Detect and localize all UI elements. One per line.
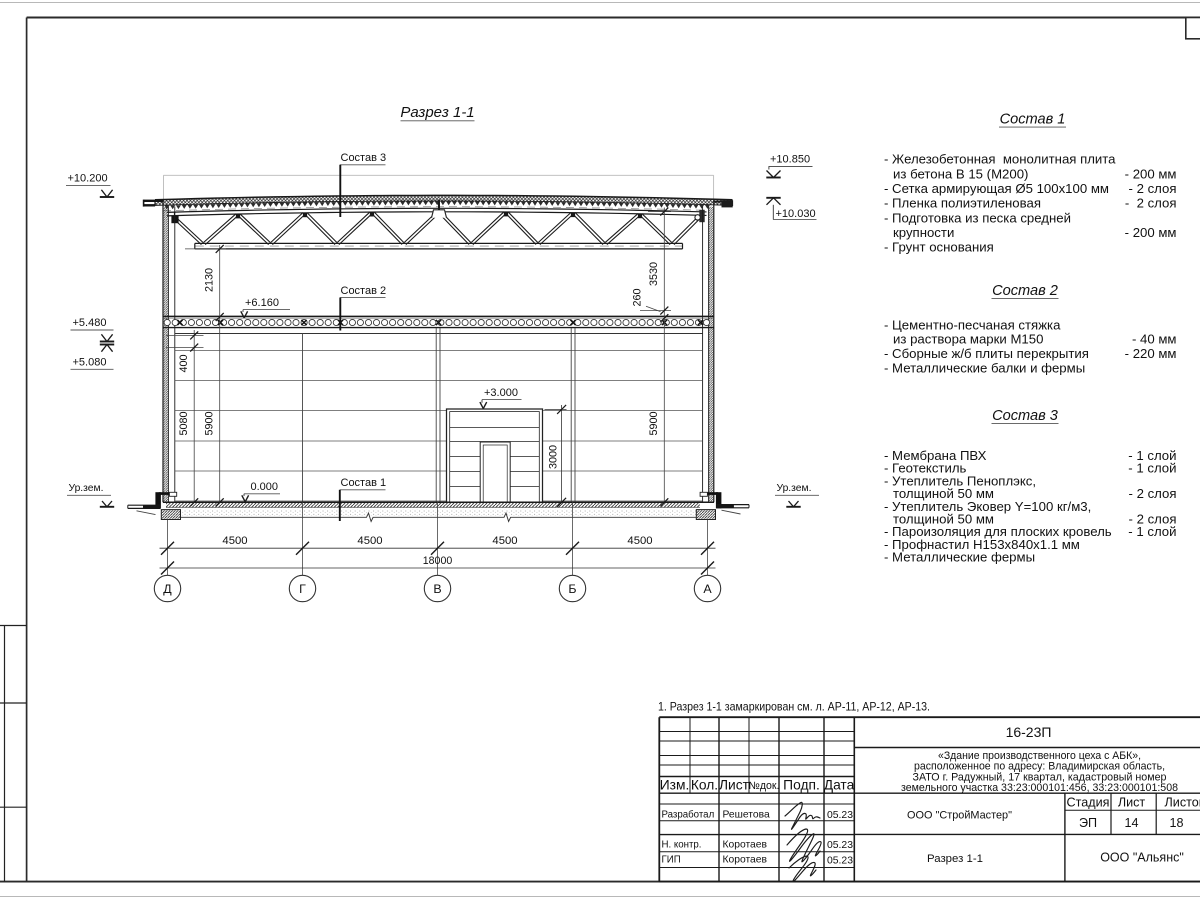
svg-text:400: 400 (178, 354, 190, 372)
svg-text:Разработал: Разработал (662, 810, 715, 821)
svg-text:ГИП: ГИП (662, 855, 681, 866)
svg-text:3530: 3530 (648, 262, 660, 286)
svg-text:земельного участка 33:23:00010: земельного участка 33:23:000101:456, 33:… (901, 782, 1178, 794)
svg-text:ЭП: ЭП (1079, 816, 1097, 830)
svg-text:+10.850: +10.850 (770, 154, 810, 166)
svg-text:- Пленка полиэтиленовая: - Пленка полиэтиленовая (884, 196, 1041, 211)
svg-text:4500: 4500 (357, 535, 382, 547)
svg-text:4500: 4500 (492, 535, 517, 547)
svg-text:16-23П: 16-23П (1006, 724, 1052, 740)
svg-text:Состав 1: Состав 1 (341, 477, 387, 489)
svg-text:- Металлические балки и фермы: - Металлические балки и фермы (884, 360, 1085, 375)
svg-text:Состав 2: Состав 2 (341, 285, 387, 297)
svg-text:Б: Б (568, 582, 576, 596)
svg-text:Ур.зем.: Ур.зем. (777, 483, 812, 494)
svg-text:+6.160: +6.160 (245, 297, 279, 309)
svg-text:- Грунт основания: - Грунт основания (884, 240, 994, 255)
svg-text:Лист: Лист (719, 778, 750, 793)
svg-text:Решетова: Решетова (723, 810, 770, 821)
svg-text:Лист: Лист (1118, 796, 1146, 810)
svg-text:Д: Д (163, 582, 172, 596)
svg-text:Коротаев: Коротаев (723, 839, 768, 850)
svg-text:05.23: 05.23 (827, 810, 853, 821)
svg-text:№док.: №док. (748, 780, 779, 792)
svg-text:- Сетка армирующая Ø5 100х100: - Сетка армирующая Ø5 100х100 мм (884, 181, 1109, 196)
svg-text:260: 260 (632, 288, 644, 306)
svg-text:2130: 2130 (203, 268, 215, 292)
svg-text:- 220 мм: - 220 мм (1125, 346, 1177, 361)
svg-text:- Металлические фермы: - Металлические фермы (884, 550, 1035, 565)
svg-text:крупности: крупности (893, 225, 954, 240)
svg-text:Стадия: Стадия (1067, 796, 1110, 810)
svg-text:Подп.: Подп. (783, 778, 820, 793)
svg-text:14: 14 (1124, 816, 1138, 830)
svg-text:В: В (433, 582, 441, 596)
svg-text:3000: 3000 (547, 445, 559, 469)
svg-text:- Подготовка из песка средней: - Подготовка из песка средней (884, 210, 1071, 225)
svg-text:- 2 слоя: - 2 слоя (1129, 181, 1177, 196)
svg-text:А: А (703, 582, 712, 596)
svg-text:+10.200: +10.200 (68, 173, 108, 185)
svg-text:Н. контр.: Н. контр. (662, 839, 702, 850)
svg-text:- 1 слой: - 1 слой (1128, 524, 1176, 539)
svg-text:+5.480: +5.480 (73, 317, 107, 329)
svg-text:18000: 18000 (423, 555, 453, 567)
svg-text:- Сборные ж/б плиты перекрытия: - Сборные ж/б плиты перекрытия (884, 346, 1089, 361)
svg-text:05.23: 05.23 (827, 840, 853, 851)
svg-text:5900: 5900 (203, 411, 215, 435)
svg-text:+3.000: +3.000 (484, 387, 518, 399)
svg-text:- 2 слоя: - 2 слоя (1125, 486, 1177, 501)
svg-text:+5.080: +5.080 (73, 357, 107, 369)
svg-text:Коротаев: Коротаев (723, 855, 768, 866)
svg-text:- 1 слой: - 1 слой (1125, 461, 1177, 476)
svg-text:5080: 5080 (178, 411, 190, 435)
svg-text:ООО "Альянс": ООО "Альянс" (1100, 850, 1184, 864)
svg-text:5900: 5900 (648, 411, 660, 435)
svg-text:4500: 4500 (627, 535, 652, 547)
svg-text:- Железобетонная монолитная п: - Железобетонная монолитная плита (884, 152, 1116, 167)
svg-text:Изм.: Изм. (660, 778, 690, 793)
svg-text:Состав 3: Состав 3 (341, 152, 387, 164)
svg-text:из бетона В 15 (М200): из бетона В 15 (М200) (893, 166, 1028, 181)
svg-text:Разрез 1-1: Разрез 1-1 (400, 104, 474, 121)
svg-text:Состав 3: Состав 3 (992, 408, 1058, 424)
svg-text:- Цементно-песчаная стяжка: - Цементно-песчаная стяжка (884, 317, 1061, 332)
svg-text:- 200 мм: - 200 мм (1125, 225, 1177, 240)
svg-text:ООО "СтройМастер": ООО "СтройМастер" (907, 810, 1012, 822)
svg-text:Состав 1: Состав 1 (1000, 112, 1066, 128)
svg-text:Г: Г (299, 582, 306, 596)
svg-text:18: 18 (1169, 816, 1183, 830)
svg-text:Дата: Дата (824, 778, 855, 793)
svg-text:1. Разрез 1-1 замаркирован см.: 1. Разрез 1-1 замаркирован см. л. АР-11,… (658, 700, 930, 714)
svg-text:Разрез 1-1: Разрез 1-1 (927, 853, 983, 865)
svg-text:- 200 мм: - 200 мм (1125, 166, 1177, 181)
svg-text:0.000: 0.000 (251, 481, 279, 493)
svg-text:из раствора марки М150: из раствора марки М150 (893, 332, 1043, 347)
svg-text:Состав 2: Состав 2 (992, 283, 1058, 299)
svg-text:- 2 слоя: - 2 слоя (1125, 196, 1177, 211)
svg-text:Кол.: Кол. (691, 778, 718, 793)
svg-text:Листов: Листов (1165, 796, 1200, 810)
svg-text:- 40 мм: - 40 мм (1132, 332, 1177, 347)
svg-text:Ур.зем.: Ур.зем. (69, 483, 104, 494)
svg-text:4500: 4500 (222, 535, 247, 547)
svg-text:05.23: 05.23 (827, 855, 853, 866)
svg-text:+10.030: +10.030 (776, 208, 816, 220)
